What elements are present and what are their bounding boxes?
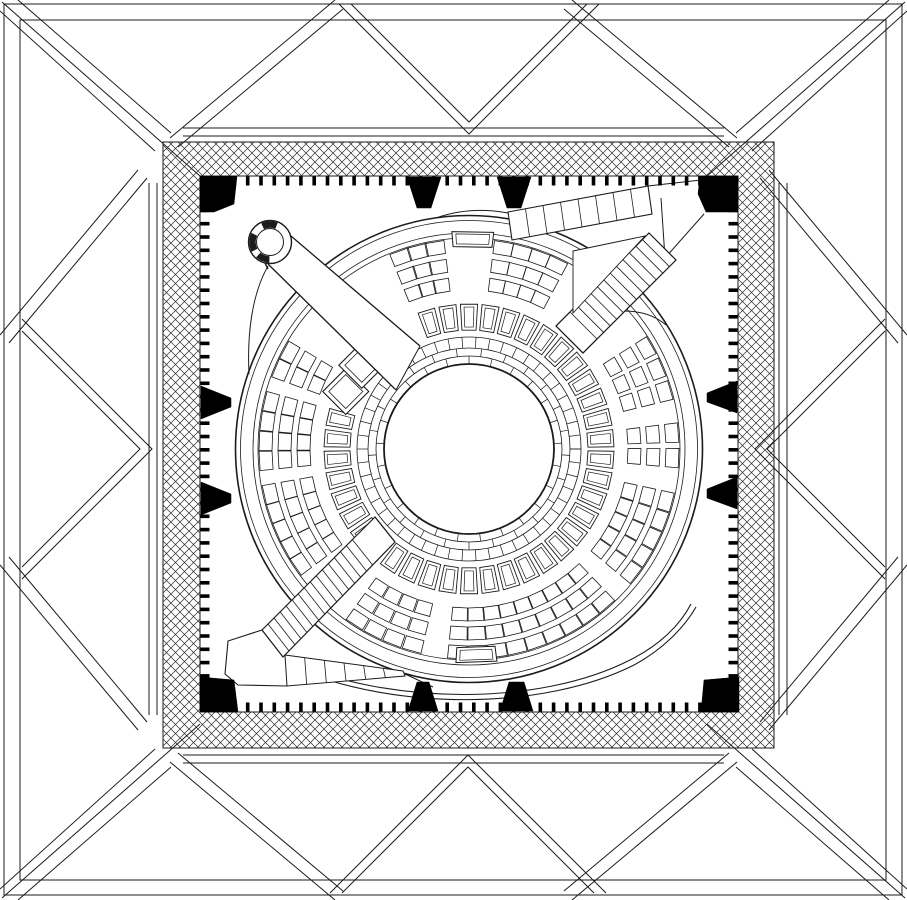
floor-plan [0,0,907,900]
corner-block [698,176,738,212]
floor-plan-svg [0,0,907,900]
corner-block [200,677,238,712]
corner-block [701,677,739,712]
